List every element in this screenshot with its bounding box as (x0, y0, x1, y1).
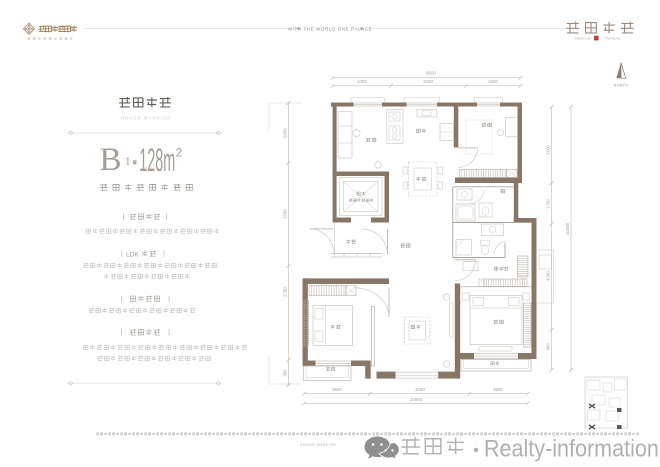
svg-text:B: B (100, 142, 122, 178)
svg-text:10500: 10500 (410, 397, 423, 402)
svg-text:900: 900 (546, 343, 551, 351)
svg-text:4000: 4000 (415, 387, 425, 392)
svg-text:1: 1 (125, 154, 131, 168)
svg-text:LDK: LDK (126, 251, 139, 258)
svg-text:2200: 2200 (283, 209, 288, 219)
svg-text:2000: 2000 (283, 128, 288, 138)
svg-text:10400: 10400 (565, 222, 570, 235)
svg-text:2100: 2100 (546, 145, 551, 155)
svg-text:Harmony: Harmony (575, 36, 591, 40)
svg-text:- HONOR MANSION -: - HONOR MANSION - (297, 443, 340, 447)
svg-text:NORTH: NORTH (614, 84, 629, 88)
svg-text:1700: 1700 (546, 199, 551, 209)
svg-text:Tianyuan: Tianyuan (605, 36, 621, 40)
svg-text:3600: 3600 (332, 387, 342, 392)
svg-text:WITH THE WORLD ONE PALACE: WITH THE WORLD ONE PALACE (288, 26, 373, 31)
svg-text:4200: 4200 (546, 271, 551, 281)
svg-text:2700: 2700 (283, 287, 288, 297)
svg-text:3200: 3200 (423, 79, 433, 84)
svg-text:128m: 128m (139, 144, 175, 179)
svg-text:HONOR MANSION: HONOR MANSION (121, 116, 172, 121)
svg-text:Realty-information: Realty-information (484, 434, 659, 462)
svg-text:2900: 2900 (488, 79, 498, 84)
svg-text:3500: 3500 (493, 387, 503, 392)
svg-text:300: 300 (283, 369, 288, 377)
svg-text:8600: 8600 (426, 71, 436, 76)
svg-text:3400: 3400 (357, 79, 367, 84)
svg-text:2: 2 (176, 146, 183, 160)
